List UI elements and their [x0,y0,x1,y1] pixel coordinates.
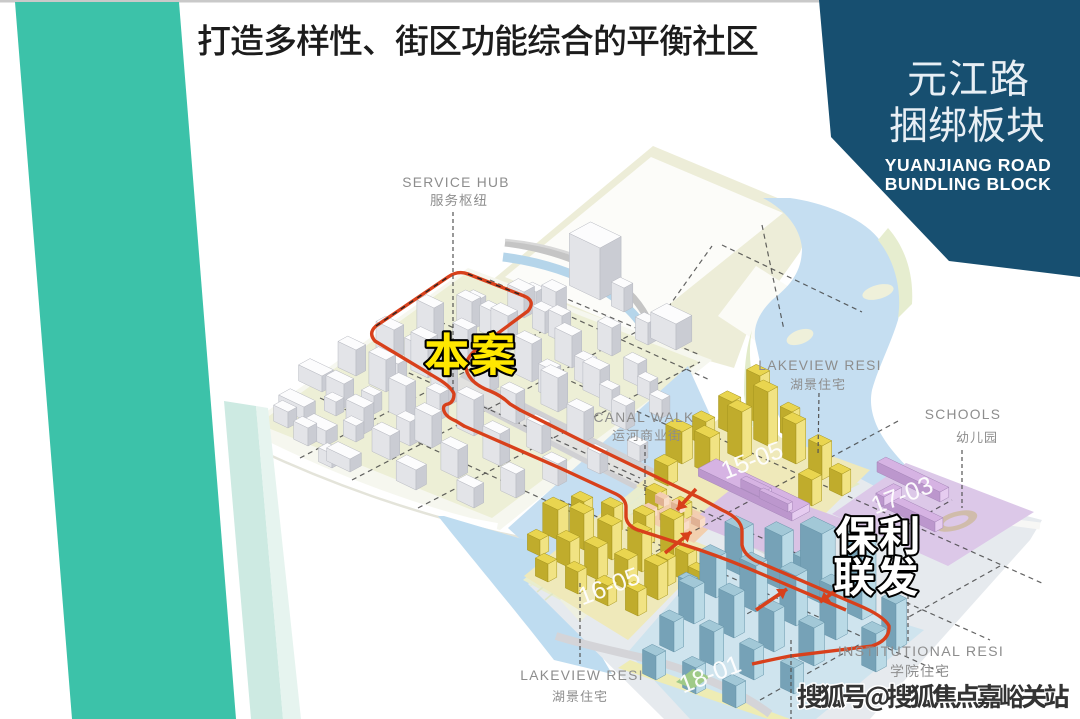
svg-text:SERVICE HUB: SERVICE HUB [402,175,510,190]
svg-text:BUNDLING BLOCK: BUNDLING BLOCK [885,174,1051,194]
svg-text:SCHOOLS: SCHOOLS [925,407,1002,422]
svg-text:YUANJIANG ROAD: YUANJIANG ROAD [885,155,1051,175]
svg-text:LAKEVIEW RESI: LAKEVIEW RESI [758,358,881,373]
svg-text:INSTITUTIONAL RESI: INSTITUTIONAL RESI [838,644,1004,660]
svg-text:CANAL WALK: CANAL WALK [594,410,695,425]
svg-text:LAKEVIEW RESI: LAKEVIEW RESI [520,668,643,683]
